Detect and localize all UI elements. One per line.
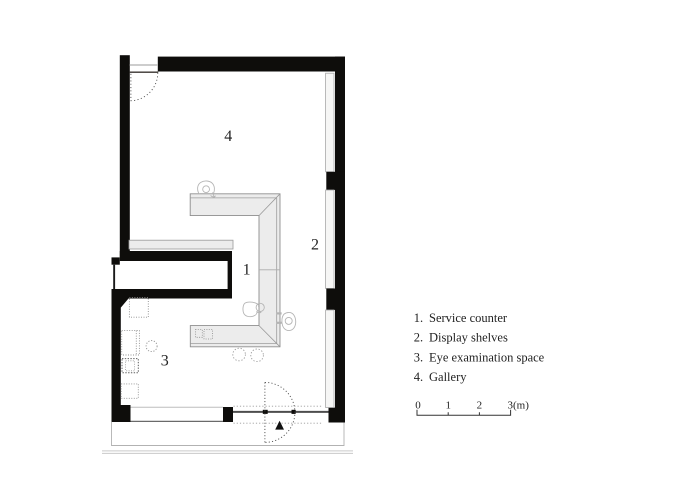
svg-text:2: 2 [311, 237, 319, 254]
svg-text:4: 4 [224, 128, 232, 145]
svg-text:3.: 3. [414, 350, 423, 364]
svg-text:Eye examination space: Eye examination space [429, 350, 545, 364]
svg-text:1.: 1. [414, 311, 423, 325]
svg-text:1: 1 [445, 399, 451, 411]
svg-text:1: 1 [243, 262, 251, 279]
svg-text:2.: 2. [414, 331, 423, 345]
svg-text:Gallery: Gallery [429, 370, 467, 384]
svg-text:2: 2 [477, 399, 483, 411]
svg-text:Service counter: Service counter [429, 311, 508, 325]
svg-text:0: 0 [415, 399, 421, 411]
svg-text:4.: 4. [414, 370, 423, 384]
svg-text:Display shelves: Display shelves [429, 331, 508, 345]
svg-text:3(m): 3(m) [508, 399, 530, 411]
svg-text:3: 3 [161, 352, 169, 369]
